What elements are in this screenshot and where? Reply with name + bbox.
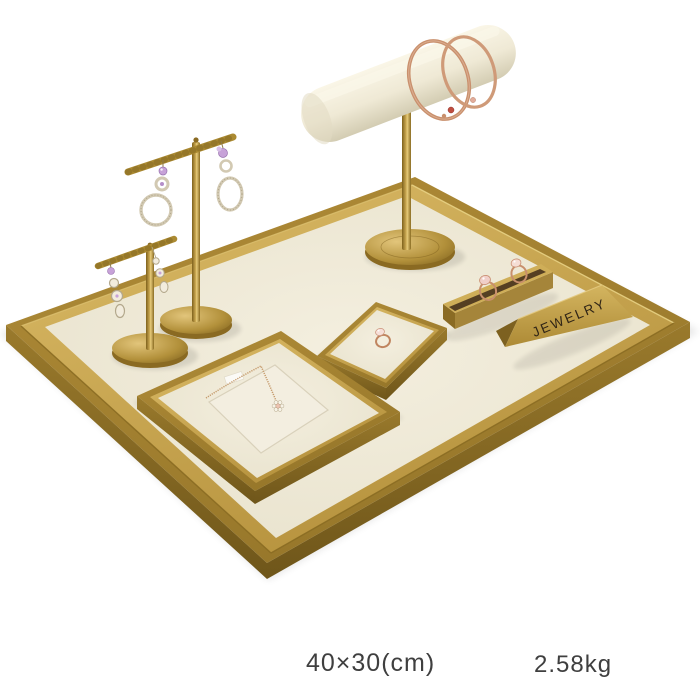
bangle-end xyxy=(442,114,446,118)
bangle-gem xyxy=(448,107,454,113)
pole-finial xyxy=(193,137,198,142)
product-photo: JEWELRY xyxy=(0,0,700,700)
size-label: 40×30(cm) xyxy=(306,649,435,678)
stand-pole xyxy=(192,142,200,322)
earring xyxy=(217,141,243,210)
pendant xyxy=(272,401,284,412)
weight-label: 2.58kg xyxy=(534,651,612,679)
bangle-gem xyxy=(470,97,475,102)
jewelry-display-scene: JEWELRY xyxy=(0,0,700,700)
tbar-pole xyxy=(402,110,411,250)
tbar-texture xyxy=(128,137,233,172)
